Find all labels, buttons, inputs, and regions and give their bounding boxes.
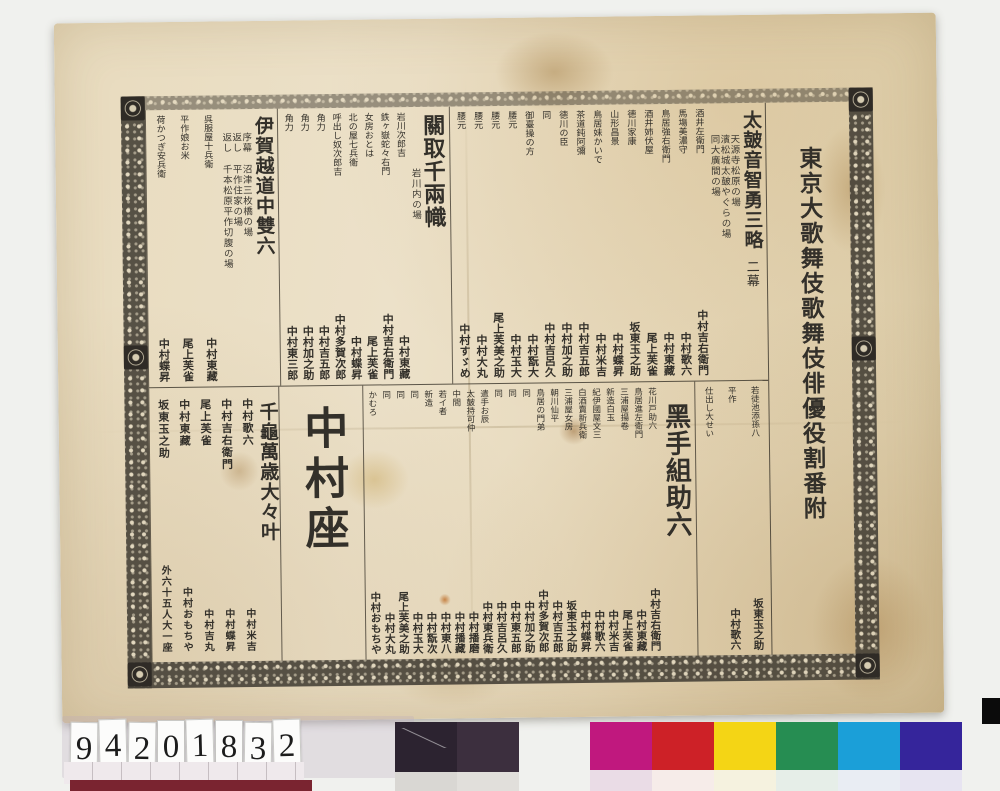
role-name: 腰元 [490, 111, 500, 129]
actor-name: 中村東藏 [177, 393, 189, 447]
actor-name: 中村蝶昇 [349, 336, 361, 380]
role-name: 呼出し奴次郎吉 [331, 113, 341, 176]
role-name: 女房おとは [363, 113, 373, 158]
color-patch-tint [652, 770, 714, 791]
color-patch-tint [776, 770, 838, 791]
actor-name: 外六十五人大一座 [159, 565, 171, 657]
role-name: 山形昌景 [609, 110, 619, 146]
role-name: 三浦屋女房 [564, 388, 573, 431]
role-name: 鳥居妹かいで [592, 110, 602, 164]
play-title-block: 關取千兩幟 [418, 112, 450, 379]
play-title: 黑手組助六 [662, 389, 691, 538]
role-name: 德川家康 [626, 109, 636, 145]
role-name: 荷かつぎ安兵衛 [155, 115, 165, 178]
frame-ornament [852, 336, 876, 360]
play-title: 關取千兩幟 [421, 114, 445, 229]
color-patch-saturated [652, 722, 714, 770]
cast-entry: 平作娘お米 尾上芙雀 [172, 115, 199, 382]
actor-name: 中村おもちや [180, 587, 191, 657]
role-name: 紀伊國屋文三 [592, 388, 602, 439]
role-name: かむろ [368, 390, 377, 416]
color-patch [776, 722, 838, 791]
actor-name: 中村東藏 [635, 609, 647, 651]
actor-name: 中村歌六 [593, 610, 605, 652]
role-name: 鳥居強右衛門 [660, 109, 670, 163]
actor-name: 中村東藏 [661, 332, 673, 376]
role-name: 新造白玉 [606, 388, 615, 422]
section-taiko-onchi: 太皷音智勇三略 二幕 天源寺松原の場濱松城太皷やぐらの場同大廣間の場 酒井左衛門 [449, 103, 768, 384]
frame-ornament [121, 96, 145, 120]
playbill-paper: 東京大歌舞伎歌舞伎俳優役割番附 太皷音智勇三略 二幕 天源寺松原の場濱松 [54, 13, 944, 724]
section-kurotegumi: 黑手組助六 花川戸助六 中村吉右衛門 鳥居進左衛門 中村東藏 [362, 382, 697, 660]
actor-name: 中村おもちや [369, 591, 381, 654]
lower-band: 若徒池添孫八 坂東玉之助 平作 中村歌六 仕出し大せい [148, 381, 771, 663]
color-patch [590, 722, 652, 791]
role-name: 新造 [424, 390, 433, 407]
actor-name: 坂東玉之助 [752, 597, 764, 650]
actor-name: 中村蝶昇 [579, 610, 591, 652]
color-calibration-bar [590, 722, 962, 791]
section-theater: 中村座 [278, 386, 365, 661]
role-name: 腰元 [456, 111, 466, 129]
grayscale-patch-dark [457, 722, 519, 772]
role-name: 遣手お辰 [480, 389, 489, 423]
actor-name: 中村歌六 [240, 392, 252, 446]
role-name: 北の屋七兵衛 [347, 113, 357, 167]
printed-sheet: 東京大歌舞伎歌舞伎俳優役割番附 太皷音智勇三略 二幕 天源寺松原の場濱松 [121, 87, 880, 688]
role-name: 平作 [727, 386, 736, 403]
actor-name: 中村吉呂久 [495, 600, 507, 653]
role-name: 德川の臣 [558, 110, 568, 146]
color-patch-saturated [838, 722, 900, 770]
actor-name: 中村播磨 [467, 611, 479, 653]
role-name: 角力 [315, 113, 325, 131]
actor-name: 中村加之助 [559, 322, 571, 377]
cast-entry: 呉服屋十兵衛 中村東藏 [195, 114, 222, 381]
grayscale-patch-light [395, 772, 457, 791]
cast-entry: 若徒池添孫八 坂東玉之助 [743, 386, 769, 650]
actor-name: 中村すゞめ [457, 323, 469, 378]
play-title-block: 太皷音智勇三略 二幕 [737, 108, 766, 375]
play-title: 伊賀越道中雙六 [252, 116, 274, 256]
role-name: 若徒池添孫八 [750, 386, 760, 437]
color-patch-saturated [590, 722, 652, 770]
role-name: 同 [396, 390, 405, 399]
color-patch [838, 722, 900, 791]
role-name: 花川戸助六 [647, 387, 656, 430]
blessing-banner: 千龜萬歳大々叶 [256, 392, 279, 656]
frame-ornament [128, 662, 152, 686]
scene-name: 返し 千本松原平作切腹の場 [219, 114, 232, 381]
role-name: 角力 [283, 114, 293, 132]
frame-ornament [849, 87, 873, 111]
actor-name: 尾上芙雀 [365, 335, 377, 379]
film-scratch [398, 728, 454, 748]
role-name: 同 [410, 390, 419, 399]
archive-photo: 東京大歌舞伎歌舞伎俳優役割番附 太皷音智勇三略 二幕 天源寺松原の場濱松 [0, 0, 1000, 791]
role-name: 同 [382, 390, 391, 399]
actor-name: 中村蝶昇 [610, 332, 622, 376]
color-patch-tint [900, 770, 962, 791]
scene-name: 同大廣間の場 [707, 108, 720, 375]
actor-name: 尾上芙雀 [644, 332, 656, 376]
ruler-strip [70, 780, 312, 791]
actor-name: 尾上芙雀 [180, 338, 192, 382]
act-count: 二幕 [745, 260, 759, 288]
actor-name: 中村玉大 [508, 334, 520, 378]
section-igagoe-continued: 若徒池添孫八 坂東玉之助 平作 中村歌六 仕出し大せい [694, 381, 771, 656]
role-name: 御臺操の方 [524, 111, 534, 156]
role-name: 腰元 [507, 111, 517, 129]
actor-name: 尾上芙雀 [621, 609, 633, 651]
role-name: 鳥居進左衛門 [633, 387, 643, 438]
film-edge-mark [982, 698, 1000, 724]
play-title: 太皷音智勇三略 [740, 110, 762, 250]
actor-name: 中村翫大 [525, 334, 537, 378]
actor-name: 坂東玉之助 [627, 321, 639, 376]
actor-name: 中村播藏 [453, 611, 465, 653]
grayscale-patch [457, 722, 519, 791]
cast-bands: 太皷音智勇三略 二幕 天源寺松原の場濱松城太皷やぐらの場同大廣間の場 酒井左衛門 [145, 103, 772, 663]
actor-name: 中村加之助 [523, 600, 535, 653]
actor-name: 坂東玉之助 [565, 600, 577, 653]
actor-name: 尾上芙雀 [198, 393, 210, 447]
actor-name: 中村米吉 [593, 333, 605, 377]
role-name: 同 [541, 110, 551, 119]
role-name: 茶道鈍阿彌 [575, 110, 585, 155]
actor-name: 坂東玉之助 [156, 393, 168, 459]
role-name: 馬塲美濃守 [677, 109, 687, 154]
frame-ornament [856, 653, 880, 677]
role-name: 呉服屋十兵衛 [202, 114, 212, 168]
actor-name: 中村歌六 [729, 608, 741, 650]
actor-name: 中村翫次 [425, 612, 437, 654]
play-title-block: 黑手組助六 [659, 387, 696, 651]
actor-name: 中村吉丸 [201, 609, 212, 657]
color-patch-saturated [714, 722, 776, 770]
cast-entry: 仕出し大せい [697, 386, 723, 650]
actor-name: 中村吉五郎 [576, 322, 588, 377]
actor-name: 中村東三郎 [285, 325, 297, 380]
role-name: 同 [508, 389, 517, 398]
theater-name: 中村座 [298, 391, 347, 656]
actor-name: 中村加之助 [301, 325, 313, 380]
upper-band: 太皷音智勇三略 二幕 天源寺松原の場濱松城太皷やぐらの場同大廣間の場 酒井左衛門 [145, 103, 768, 389]
actor-name: 中村多賀次郎 [333, 314, 345, 380]
role-name: 同 [494, 389, 503, 398]
role-name: 酒井姉伏屋 [643, 109, 653, 154]
color-patch [900, 722, 962, 791]
play-title-block: 伊賀越道中雙六 [249, 114, 278, 381]
role-name: 岩川次郎吉 [395, 112, 405, 157]
actor-name: 尾上芙美之助 [491, 312, 503, 378]
actor-name: 中村米吉 [607, 610, 619, 652]
role-name: 中間 [452, 389, 461, 406]
playbill-title: 東京大歌舞伎歌舞伎俳優役割番附 [796, 146, 826, 654]
role-name: 平作娘お米 [179, 115, 189, 160]
cast-entry: 平作 中村歌六 [720, 386, 746, 650]
actor-name: 中村東兵衛 [481, 601, 493, 654]
actor-name: 中村大丸 [474, 334, 486, 378]
role-name: 腰元 [473, 111, 483, 129]
section-igagoe: 伊賀越道中雙六 序幕 沼津三枚橋の場返し 平作住家の場返し 千本松原平作切腹の場… [145, 109, 280, 388]
playbill-content: 東京大歌舞伎歌舞伎俳優役割番附 太皷音智勇三略 二幕 天源寺松原の場濱松 [145, 102, 856, 663]
actor-name: 中村米吉 [243, 608, 254, 656]
role-name: 白酒賣新兵衛 [578, 388, 588, 439]
color-patch [714, 722, 776, 791]
actor-name: 中村東八 [439, 612, 451, 654]
role-name: 三浦屋揚卷 [619, 387, 628, 430]
color-patch-saturated [900, 722, 962, 770]
role-name: 若イ者 [438, 390, 447, 416]
role-name: 酒井左衛門 [694, 108, 704, 153]
actor-name: 中村吉呂久 [542, 322, 554, 377]
frame-ornament [124, 345, 148, 369]
actor-name: 中村東藏 [204, 337, 216, 381]
actor-name: 中村玉大 [411, 612, 423, 654]
section-sekitori: 關取千兩幟 岩川内の場 岩川次郎吉 中村東藏 [277, 107, 452, 386]
actor-name: 中村大丸 [383, 612, 395, 654]
actor-name: 中村東五郎 [509, 600, 521, 653]
role-name: 太皷持可仲 [466, 389, 475, 432]
role-name: 角力 [299, 113, 309, 131]
role-name: 鉄ヶ嶽蛇々右門 [379, 112, 389, 175]
actor-name: 中村吉右衛門 [649, 588, 661, 651]
actor-name: 中村吉五郎 [551, 600, 563, 653]
role-name: 鳥居の門弟 [536, 388, 545, 431]
actor-name: 中村吉右衛門 [381, 313, 393, 379]
color-patch-tint [838, 770, 900, 791]
role-name: 同 [522, 389, 531, 398]
color-patch-saturated [776, 722, 838, 770]
grayscale-patch-light [457, 772, 519, 791]
color-patch-tint [714, 770, 776, 791]
main-title-column: 東京大歌舞伎歌舞伎俳優役割番附 [765, 102, 856, 655]
role-name: 仕出し大せい [704, 386, 714, 437]
actor-name: 中村吉五郎 [317, 325, 329, 380]
cast-entry: 荷かつぎ安兵衛 中村蝶昇 [148, 115, 175, 382]
actor-name: 中村吉右衛門 [219, 392, 231, 470]
color-patch [652, 722, 714, 791]
actor-name: 中村歌六 [679, 332, 691, 376]
color-patch-tint [590, 770, 652, 791]
actor-name: 中村蝶昇 [157, 338, 169, 382]
actor-name: 中村蝶昇 [222, 608, 233, 656]
actor-name: 中村吉右衛門 [695, 309, 707, 375]
actor-name: 尾上芙美之助 [397, 591, 409, 654]
role-name: 朝川仙平 [550, 388, 559, 422]
actor-name: 中村多賀次郎 [537, 589, 549, 652]
actor-name: 中村東藏 [397, 335, 409, 379]
section-troupe-roster: 千龜萬歳大々叶 中村歌六 中村米吉 中村吉右衛門 中村蝶昇 [148, 387, 281, 663]
